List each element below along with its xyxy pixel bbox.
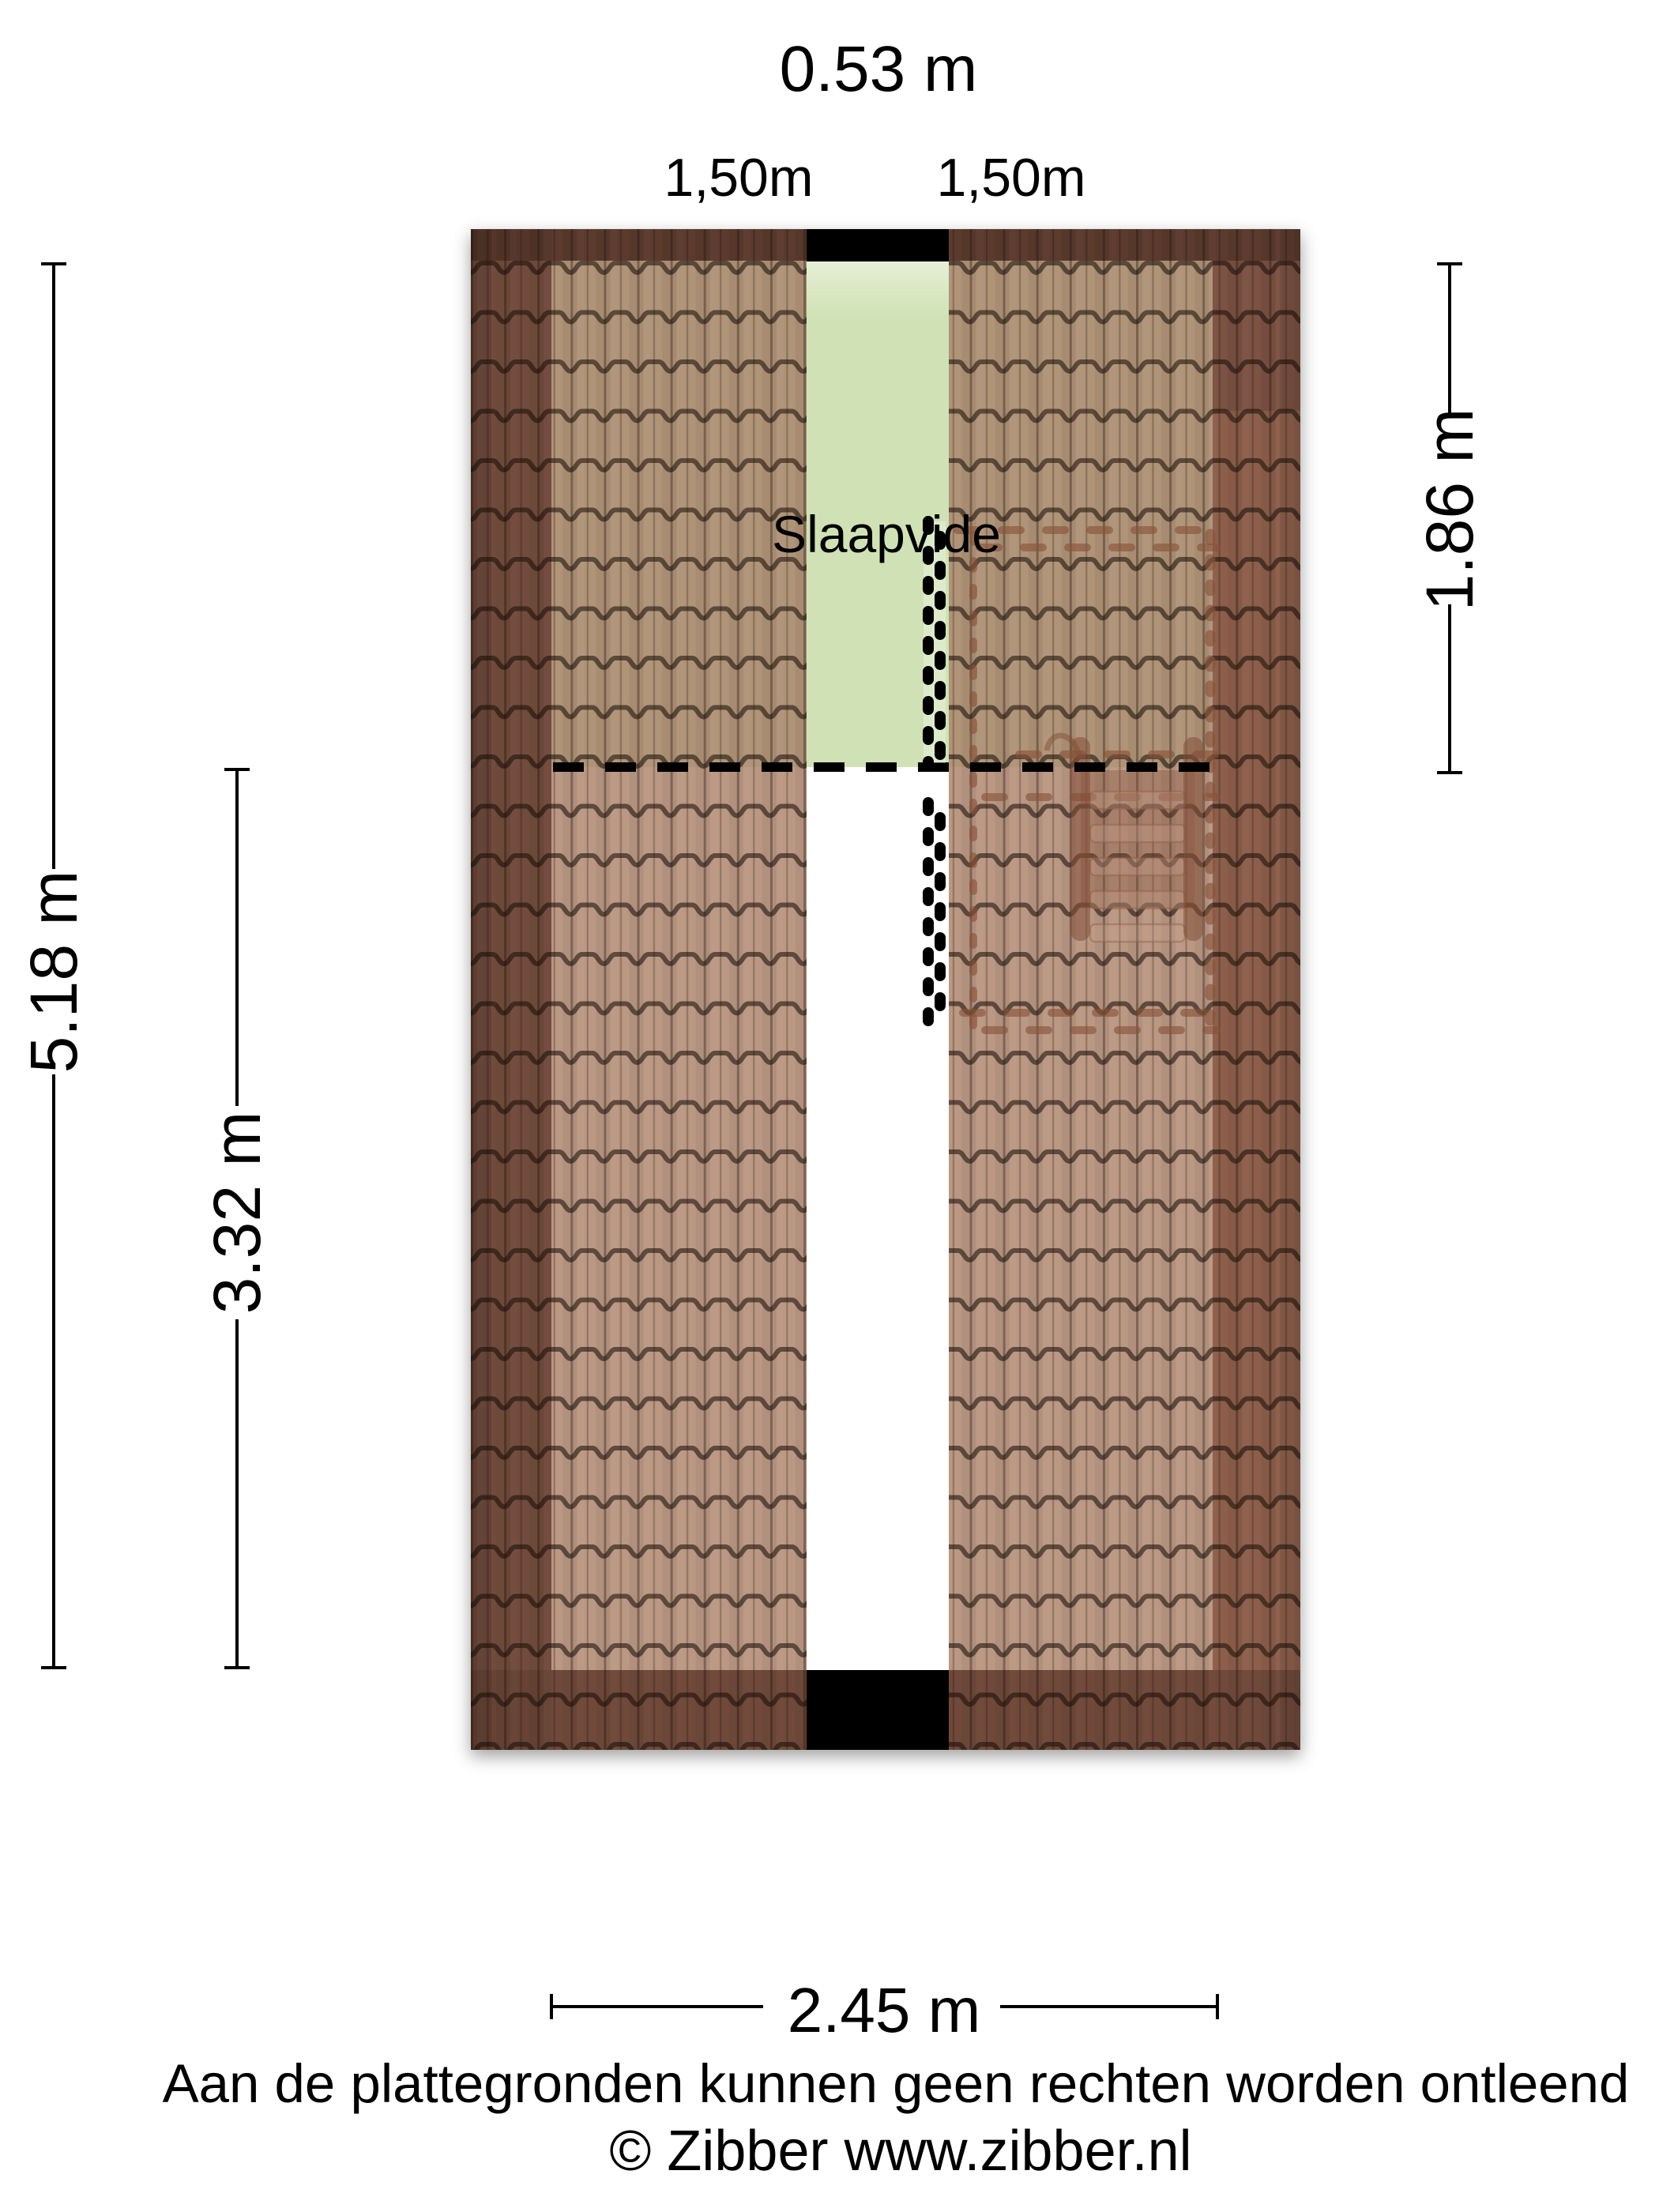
svg-text:1,50m: 1,50m [664, 148, 814, 208]
svg-text:© Zibber www.zibber.nl: © Zibber www.zibber.nl [609, 2120, 1191, 2183]
svg-text:2.45 m: 2.45 m [788, 1975, 981, 2045]
svg-text:5.18 m: 5.18 m [17, 871, 91, 1074]
svg-text:0.53 m: 0.53 m [780, 33, 978, 105]
svg-text:1.86 m: 1.86 m [1413, 408, 1487, 611]
svg-text:3.32 m: 3.32 m [200, 1112, 274, 1315]
svg-text:Aan de plattegronden kunnen ge: Aan de plattegronden kunnen geen rechten… [163, 2053, 1630, 2114]
svg-text:1,50m: 1,50m [937, 148, 1086, 208]
svg-text:Slaapvide: Slaapvide [772, 505, 1001, 563]
